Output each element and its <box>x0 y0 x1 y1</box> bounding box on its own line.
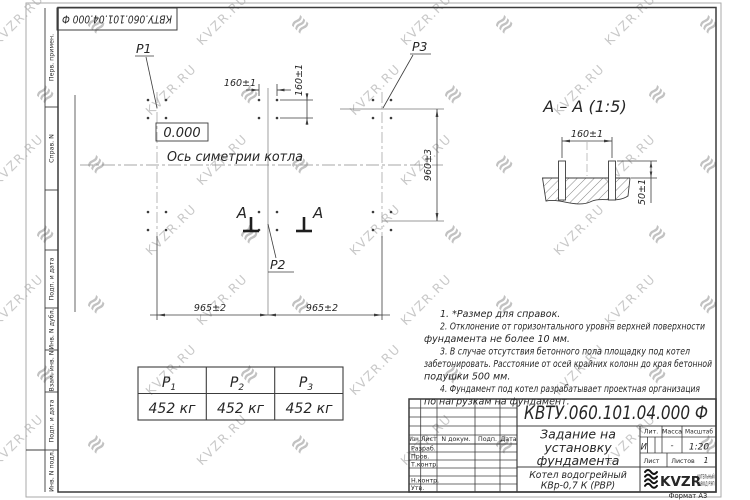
margin-label-inv-n-podl: Инв. N подл. <box>49 450 56 492</box>
load-table-value: 452 кг <box>149 401 197 417</box>
load-table-value: 452 кг <box>286 401 334 417</box>
load-table-value: 452 кг <box>217 401 265 417</box>
load-point-p3: P3 <box>412 39 428 54</box>
col-list: Лист <box>421 436 437 443</box>
plan-view: 160±1 160±1 960±3 <box>75 39 444 320</box>
top-doc-number-box: КВТУ.060.101.04.000 Ф <box>57 8 177 30</box>
row-razrab: Разраб. <box>411 445 436 453</box>
col-izm: Изм. <box>410 436 421 443</box>
section-dim-160-label: 160±1 <box>571 129 603 140</box>
left-margin-labels: Перв. примен. Справ. N Подп. и дата Инв.… <box>48 34 56 492</box>
dim-spans-965 <box>150 236 390 320</box>
load-point-p2: P2 <box>270 257 286 272</box>
listov-label: Листов <box>671 458 695 465</box>
title-line: фундамента <box>537 453 620 468</box>
margin-label-podp-data-1: Подп. и дата <box>49 257 56 300</box>
section-letter-right: А <box>312 204 323 222</box>
title-block: КВТУ.060.101.04.000 Ф Изм. Лист N докум.… <box>409 399 716 492</box>
note-line: подушки 500 мм. <box>424 372 510 383</box>
format-label: Формат А3 <box>669 492 708 500</box>
kvzr-spring-icon <box>645 470 657 488</box>
load-table-header: P1 <box>162 375 176 393</box>
section-view: А – А (1:5) 160±1 <box>542 97 657 205</box>
row-prov: Пров. <box>411 454 429 461</box>
lit-label: Лит. <box>644 429 659 436</box>
lit-value: И <box>641 443 648 453</box>
col-n-dokum: N докум. <box>441 436 470 443</box>
product-line: КВр-0,7 К (РВР) <box>541 481 615 492</box>
symmetry-axis-label: Ось симетрии котла <box>167 150 303 165</box>
note-line: 4. Фундамент под котел разрабатывает про… <box>440 384 700 395</box>
row-tkontr: Т.контр. <box>410 462 438 469</box>
margin-label-podp-data-2: Подп. и дата <box>49 399 56 442</box>
section-title: А – А (1:5) <box>542 97 626 116</box>
masshtab-label: Масштаб <box>685 428 713 436</box>
margin-label-sprav-n: Справ. N <box>49 134 56 163</box>
drawing-sheet: KVZR.RU≋KVZR.RU≋KVZR.RU≋KVZR.RU≋≋KVZR.RU… <box>0 0 750 500</box>
load-table-header: P3 <box>299 375 313 393</box>
kvzr-logo-text: KVZR <box>660 474 702 490</box>
col-data: Дата <box>500 436 516 443</box>
notes-block: 1. *Размер для справок. 2. Отклонение от… <box>424 309 712 408</box>
dim-bolt-y-label: 160±1 <box>294 64 305 96</box>
elevation-value: 0.000 <box>163 126 200 141</box>
kvzr-logo-sub2: ЗАВОД РЭП <box>697 482 715 488</box>
dim-bolt-x-label: 160±1 <box>224 78 256 89</box>
col-podp: Подп. <box>478 436 497 443</box>
top-doc-number: КВТУ.060.101.04.000 Ф <box>62 13 172 26</box>
margin-label-inv-n-dubl: Инв. N дубл. <box>48 308 56 349</box>
dim-bolt-spacing-y <box>280 93 313 125</box>
note-line: 3. В случае отсутствия бетонного пола пл… <box>440 347 690 358</box>
product-line: Котел водогрейный <box>529 470 627 481</box>
margin-label-perv-primen: Перв. примен. <box>49 34 56 81</box>
dim-span-right-label: 965±2 <box>306 303 338 314</box>
listov-value: 1 <box>703 456 708 465</box>
masshtab-value: 1:20 <box>689 443 709 453</box>
concrete-foundation <box>543 178 631 204</box>
section-letter-left: А <box>236 204 247 222</box>
drawing-svg: Перв. примен. Справ. N Подп. и дата Инв.… <box>0 0 750 500</box>
margin-label-vzam-inv-n: Взам. инв. N <box>49 350 56 391</box>
note-line: фундамента не более 10 мм. <box>424 334 570 345</box>
kvzr-logo: KVZR КОТЕЛЬНЫЙ ЗАВОД РЭП <box>645 470 715 490</box>
load-table-header: P2 <box>230 375 244 393</box>
list-label: Лист <box>644 458 660 465</box>
section-dim-50-label: 50±1 <box>637 179 648 205</box>
load-table: P1 P2 P3 452 кг 452 кг 452 кг <box>138 367 343 420</box>
row-nkontr: Н.контр. <box>411 478 439 485</box>
note-line: забетонировать. Расстояние от осей крайн… <box>424 359 712 370</box>
massa-value: - <box>670 441 673 451</box>
note-line: 1. *Размер для справок. <box>440 309 560 320</box>
dim-span-left-label: 965±2 <box>194 303 226 314</box>
load-point-p1: P1 <box>136 41 152 56</box>
title-block-doc-number: КВТУ.060.101.04.000 Ф <box>524 403 708 424</box>
massa-label: Масса <box>662 429 682 436</box>
row-utv: Утв. <box>411 485 424 492</box>
kvzr-logo-sub1: КОТЕЛЬНЫЙ <box>697 474 715 481</box>
dim-width-label: 960±3 <box>423 149 434 181</box>
note-line: 2. Отклонение от горизонтального уровня … <box>440 322 705 333</box>
